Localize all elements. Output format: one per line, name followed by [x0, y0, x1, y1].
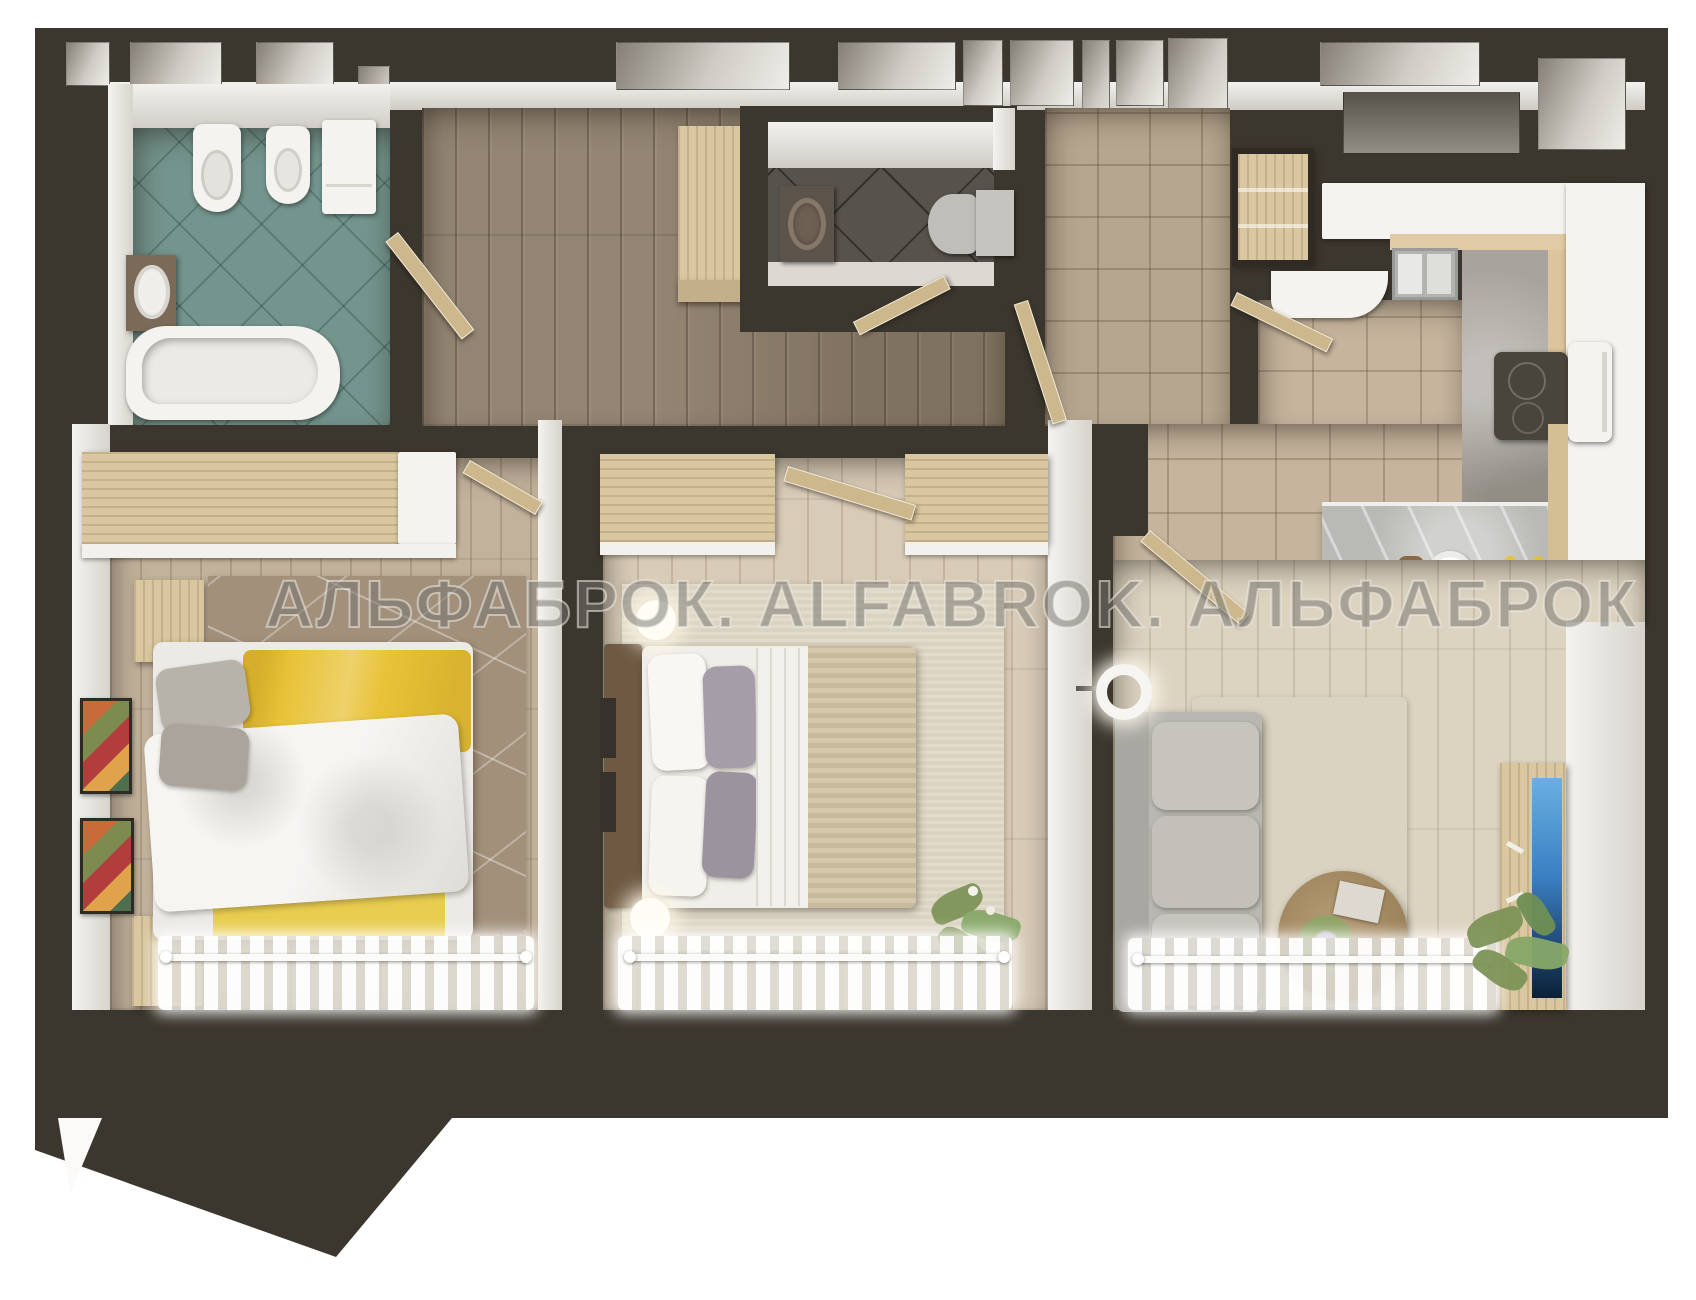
closet-niche [66, 42, 110, 86]
floorplan-render: АЛЬФАБРОК. ALFABROK. АЛЬФАБРОК [0, 0, 1696, 1300]
burner [1512, 402, 1544, 434]
bed2-lavender-pillow [701, 771, 758, 880]
wc-sink [788, 198, 826, 250]
closet-niche [1116, 40, 1164, 106]
plant-blossom [986, 906, 995, 915]
bed1-gray-pillow [154, 658, 252, 734]
bathtub-basin [142, 338, 318, 404]
kitchen-wall-niche [1343, 92, 1520, 154]
kitchen-counter-end [1271, 271, 1388, 318]
wall-art [80, 818, 134, 914]
bedroom1-radiator-rod [166, 954, 524, 961]
bed2 [642, 646, 916, 908]
bedroom1-right-wall-face [538, 420, 562, 1010]
bidet-bowl [274, 148, 302, 192]
oven [1568, 342, 1612, 442]
sink-basin [1398, 254, 1422, 294]
wc-toilet-bowl [928, 194, 978, 254]
rod-finial [624, 951, 636, 963]
sink-basin [1427, 254, 1451, 294]
living-door-wall-stub [1092, 424, 1148, 536]
wall-lamp [630, 898, 670, 938]
console-decor [1506, 841, 1524, 854]
closet-niche [1320, 42, 1480, 86]
bed1-gray-pillow [158, 723, 250, 791]
entry-floor [1045, 108, 1230, 426]
rod-finial [520, 951, 532, 963]
bedroom2-wardrobe [905, 454, 1048, 542]
bedroom2-radiator-rod [630, 954, 1002, 961]
entry-closet-shelves [1232, 148, 1314, 266]
bed2-sheet [756, 648, 812, 906]
wc-wall-face-bottom [768, 262, 994, 286]
wc-wall-face [768, 122, 994, 168]
closet-niche [616, 42, 790, 90]
bedroom1-wardrobe [82, 452, 398, 544]
shelf [1238, 224, 1308, 228]
bedroom2-curtain [618, 936, 1012, 1010]
closet-niche [256, 42, 334, 86]
watermark-text: АЛЬФАБРОК. ALFABROK. АЛЬФАБРОК [265, 566, 1638, 643]
floor-lamp [1096, 664, 1152, 720]
burner [1508, 362, 1546, 400]
wall-art [80, 698, 132, 794]
sofa-cushion [1152, 722, 1259, 810]
bedroom2-wardrobe [600, 454, 775, 542]
table-books [1333, 881, 1385, 924]
rod-finial [160, 951, 172, 963]
bed1 [153, 642, 473, 940]
wall-frame [600, 698, 616, 758]
bedroom1-curtain [158, 936, 534, 1010]
bathroom-vanity [126, 255, 176, 331]
hall-entry-wall-face [993, 108, 1015, 170]
bed2-white-pillow [647, 653, 711, 772]
toilet-bowl [201, 150, 233, 200]
living-right-wall-face [1566, 622, 1645, 1010]
living-curtain [1128, 938, 1496, 1010]
oven-handle [1602, 352, 1607, 432]
bedroom2-wardrobe-ledge [600, 542, 775, 555]
bed2-white-pillow [648, 775, 710, 897]
plant-blossom [968, 886, 978, 896]
washing-machine [322, 120, 376, 214]
shelf [1238, 188, 1308, 192]
closet-niche [130, 42, 222, 86]
kitchen-sink [1392, 248, 1458, 300]
closet-niche [1010, 40, 1074, 106]
bathroom-sink [134, 265, 170, 319]
bedroom2-living-wall-face [1048, 420, 1092, 1010]
wall-frame [600, 772, 616, 832]
bedroom2-wardrobe-ledge [905, 542, 1048, 555]
bedroom1-wardrobe-ledge [82, 544, 456, 558]
bed2-lavender-pillow [702, 665, 758, 769]
wc-vanity [780, 186, 834, 262]
closet-niche [838, 42, 956, 90]
wc-toilet-tank [976, 190, 1014, 256]
closet-niche [1538, 58, 1626, 150]
living-radiator-rod [1138, 956, 1486, 963]
rod-finial [998, 951, 1010, 963]
closet-niche [963, 40, 1003, 106]
bed2-beige-blanket [808, 646, 916, 908]
bedroom1-wardrobe-end [398, 452, 456, 544]
sofa-cushion [1152, 816, 1259, 908]
washer-seam [326, 184, 372, 187]
bathtub [126, 326, 340, 420]
bidet [266, 126, 310, 204]
rod-finial [1132, 953, 1144, 965]
toilet [193, 124, 241, 212]
